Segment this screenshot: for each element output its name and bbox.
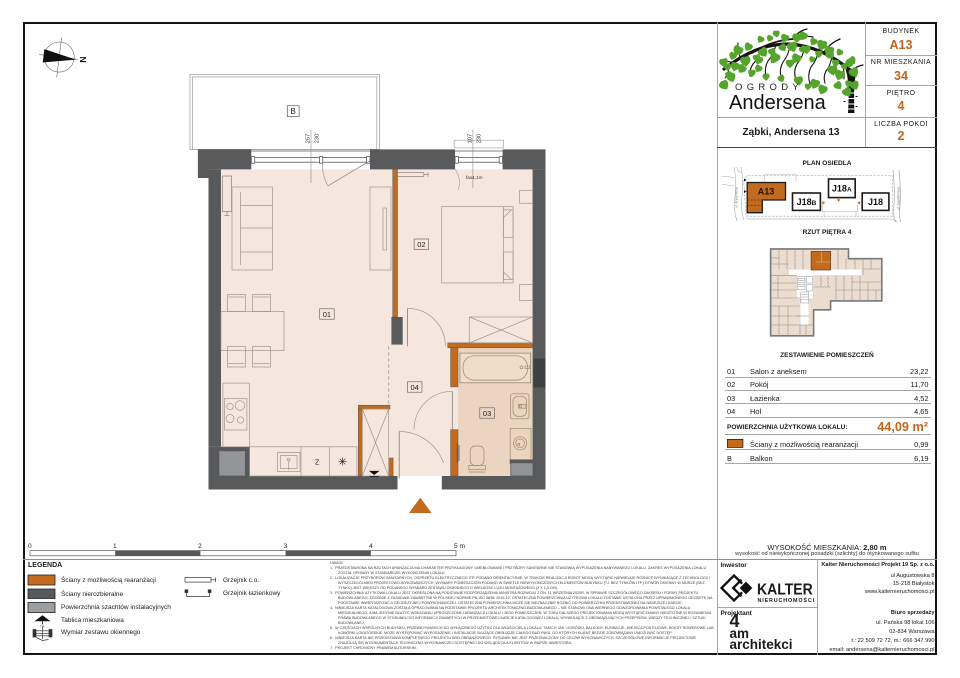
svg-text:N: N (78, 57, 88, 63)
svg-text:257: 257 (305, 134, 311, 143)
svg-text:5 m: 5 m (454, 543, 465, 550)
svg-text:01: 01 (323, 310, 331, 319)
svg-text:230: 230 (477, 134, 483, 143)
svg-text:230: 230 (315, 134, 321, 143)
svg-text:ul. Andersena: ul. Andersena (735, 187, 739, 208)
svg-text:0: 0 (28, 543, 32, 550)
svg-text:107: 107 (467, 134, 473, 143)
svg-text:J18: J18 (868, 197, 883, 207)
svg-text:1: 1 (113, 543, 117, 550)
svg-text:NIERUCHOMOŚCI: NIERUCHOMOŚCI (758, 597, 815, 604)
svg-text:o: o (517, 442, 520, 448)
svg-text:02: 02 (417, 240, 425, 249)
svg-text:4: 4 (369, 543, 373, 550)
svg-text:3: 3 (284, 543, 288, 550)
svg-text:fa≥1,1m: fa≥1,1m (466, 175, 483, 180)
svg-text:B: B (291, 107, 296, 116)
svg-text:2: 2 (198, 543, 202, 550)
svg-text:04: 04 (411, 383, 419, 392)
svg-text:03: 03 (483, 409, 491, 418)
svg-text:A13: A13 (758, 187, 775, 197)
svg-text:ul. Jagiellońska: ul. Jagiellońska (897, 187, 901, 210)
svg-text:Z: Z (315, 460, 320, 467)
